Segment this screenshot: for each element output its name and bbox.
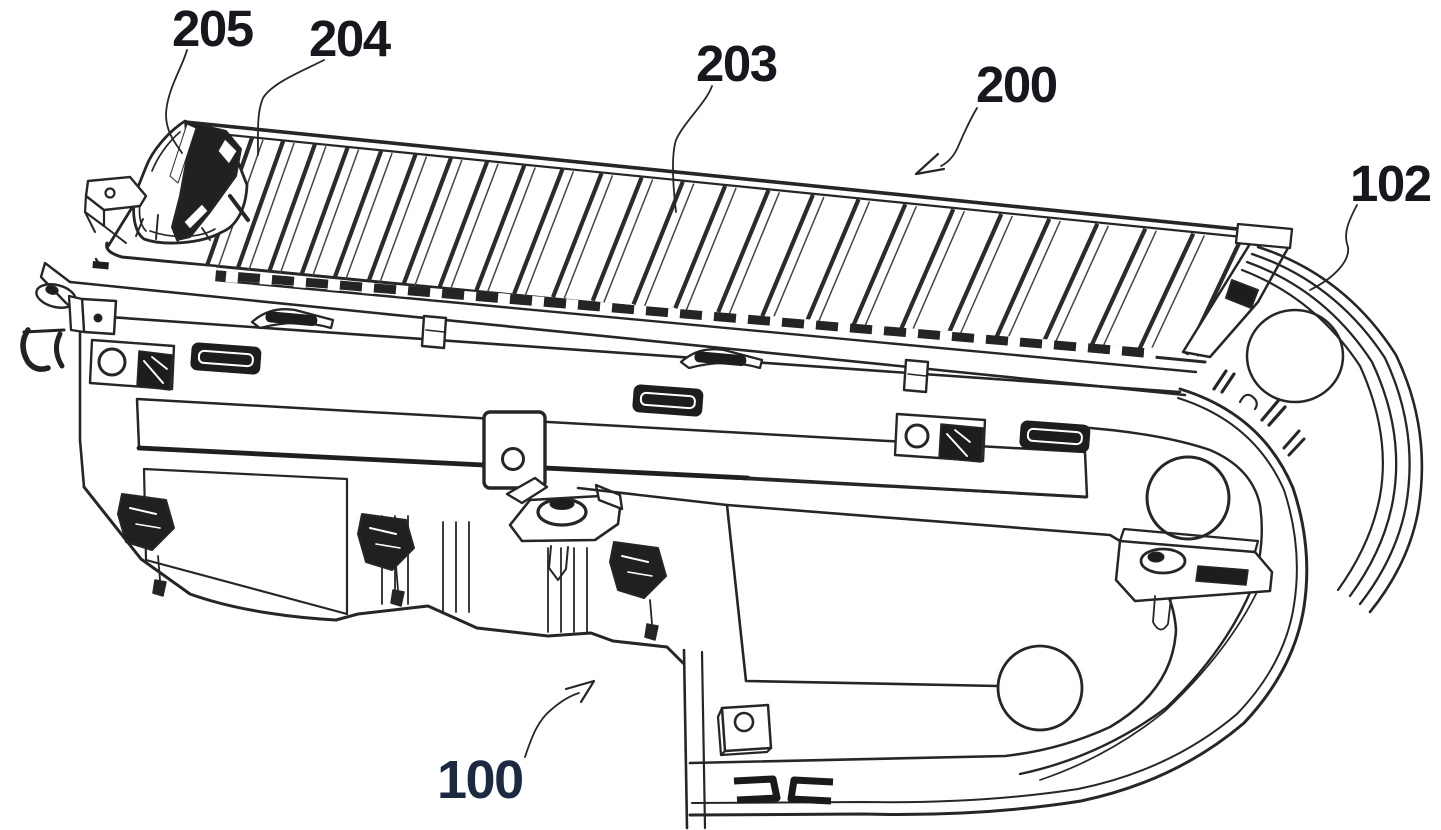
svg-text:203: 203 bbox=[696, 35, 777, 92]
svg-text:200: 200 bbox=[976, 56, 1057, 113]
svg-text:102: 102 bbox=[1350, 155, 1431, 212]
svg-text:100: 100 bbox=[437, 750, 523, 810]
svg-text:204: 204 bbox=[309, 10, 392, 67]
svg-text:205: 205 bbox=[172, 0, 253, 57]
